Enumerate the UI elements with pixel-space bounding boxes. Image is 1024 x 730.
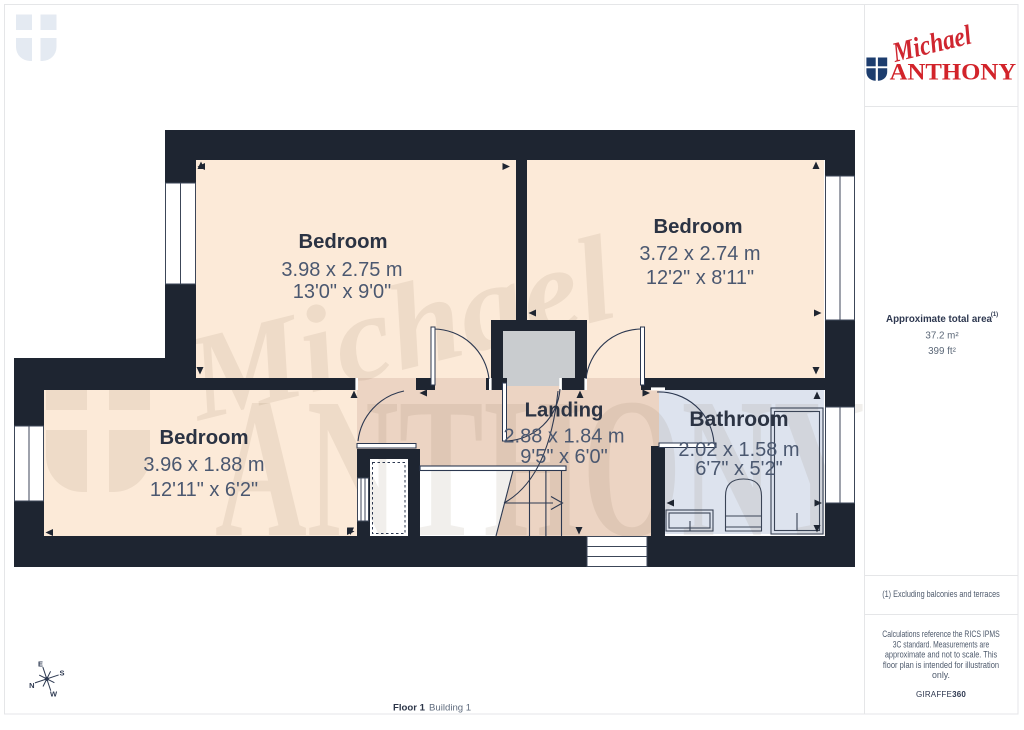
svg-text:Bedroom: Bedroom: [653, 216, 742, 238]
svg-text:GIRAFFE360: GIRAFFE360: [916, 690, 966, 699]
svg-text:3.72 x 2.74 m: 3.72 x 2.74 m: [639, 243, 760, 265]
svg-text:3.98 x 2.75 m: 3.98 x 2.75 m: [281, 259, 402, 281]
svg-text:Landing: Landing: [525, 400, 604, 422]
svg-text:Calculations reference the RIC: Calculations reference the RICS IPMS: [882, 629, 1000, 639]
svg-text:E: E: [38, 660, 43, 669]
svg-text:S: S: [59, 669, 64, 678]
svg-text:(1) Excluding balconies and te: (1) Excluding balconies and terraces: [882, 589, 1000, 599]
svg-text:Floor 1: Floor 1: [393, 703, 426, 714]
svg-text:3.96 x 1.88 m: 3.96 x 1.88 m: [143, 454, 264, 476]
svg-text:W: W: [50, 690, 58, 699]
svg-text:N: N: [29, 681, 34, 690]
svg-text:Bathroom: Bathroom: [689, 408, 788, 431]
svg-text:Bedroom: Bedroom: [159, 427, 248, 449]
svg-text:9'5" x 6'0": 9'5" x 6'0": [520, 446, 607, 468]
svg-text:3C standard. Measurements are: 3C standard. Measurements are: [893, 639, 990, 649]
svg-text:Building 1: Building 1: [429, 703, 471, 714]
svg-text:12'2" x 8'11": 12'2" x 8'11": [646, 267, 754, 289]
svg-text:2.88 x 1.84 m: 2.88 x 1.84 m: [503, 426, 624, 448]
svg-text:only.: only.: [932, 670, 950, 680]
svg-text:Approximate total area: Approximate total area: [886, 313, 992, 325]
svg-text:ANTHONY: ANTHONY: [890, 60, 1017, 85]
svg-text:approximate and not to scale.: approximate and not to scale. This: [885, 650, 998, 660]
svg-text:(1): (1): [991, 312, 998, 318]
svg-text:37.2 m²: 37.2 m²: [925, 331, 959, 342]
svg-text:13'0" x 9'0": 13'0" x 9'0": [293, 281, 392, 303]
svg-text:12'11" x 6'2": 12'11" x 6'2": [150, 479, 258, 501]
svg-text:399 ft²: 399 ft²: [928, 346, 957, 357]
svg-text:floor plan is intended for ill: floor plan is intended for illustration: [883, 660, 999, 670]
svg-text:Bedroom: Bedroom: [298, 231, 387, 253]
svg-text:6'7" x 5'2": 6'7" x 5'2": [695, 458, 782, 480]
